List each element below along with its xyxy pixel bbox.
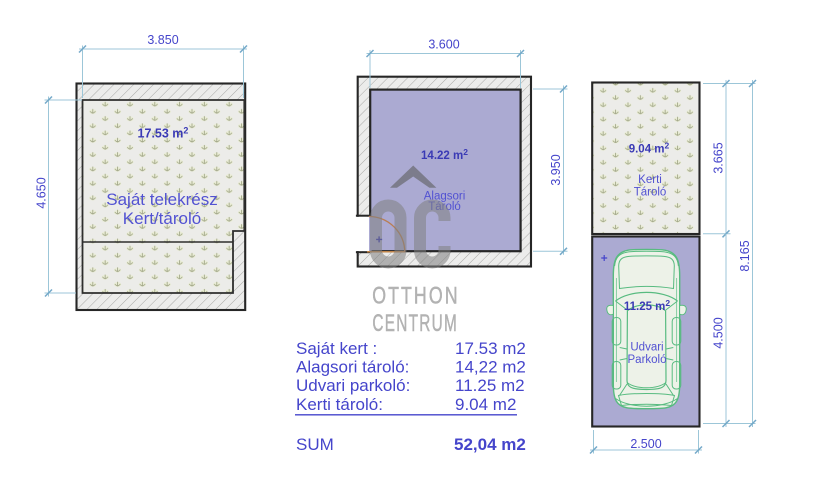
svg-text:Kerti: Kerti bbox=[638, 174, 662, 186]
svg-text:Saját telekrész: Saját telekrész bbox=[106, 190, 218, 209]
svg-text:Saját kert :: Saját kert : bbox=[296, 339, 377, 358]
svg-text:Tároló: Tároló bbox=[634, 187, 667, 199]
svg-text:52,04 m2: 52,04 m2 bbox=[454, 435, 526, 454]
svg-text:3.600: 3.600 bbox=[428, 38, 459, 52]
svg-text:17.53 m2: 17.53 m2 bbox=[455, 339, 526, 358]
svg-text:Parkoló: Parkoló bbox=[628, 354, 667, 366]
svg-text:3.850: 3.850 bbox=[147, 33, 178, 47]
svg-text:Kerti tároló:: Kerti tároló: bbox=[296, 395, 383, 414]
svg-text:SUM: SUM bbox=[296, 435, 334, 454]
svg-text:8.165: 8.165 bbox=[738, 240, 752, 271]
svg-text:4.500: 4.500 bbox=[712, 317, 726, 348]
svg-text:2.500: 2.500 bbox=[630, 437, 661, 451]
svg-text:11.25 m2: 11.25 m2 bbox=[624, 298, 671, 313]
svg-text:9.04 m2: 9.04 m2 bbox=[455, 395, 516, 414]
svg-text:Udvari parkoló:: Udvari parkoló: bbox=[296, 376, 410, 395]
svg-text:OTTHON: OTTHON bbox=[372, 283, 459, 309]
svg-text:3.950: 3.950 bbox=[549, 154, 563, 185]
svg-text:14,22 m2: 14,22 m2 bbox=[455, 358, 526, 377]
svg-text:14.22 m2: 14.22 m2 bbox=[421, 147, 468, 162]
svg-text:3.665: 3.665 bbox=[712, 142, 726, 173]
svg-text:CENTRUM: CENTRUM bbox=[372, 311, 458, 337]
svg-text:11.25 m2: 11.25 m2 bbox=[455, 376, 525, 395]
svg-text:9.04 m2: 9.04 m2 bbox=[629, 141, 670, 156]
svg-text:4.650: 4.650 bbox=[35, 177, 49, 208]
svg-text:Kert/tároló: Kert/tároló bbox=[123, 209, 201, 228]
svg-text:Udvari: Udvari bbox=[630, 342, 663, 354]
svg-text:17.53 m2: 17.53 m2 bbox=[138, 126, 189, 141]
svg-text:Alagsori tároló:: Alagsori tároló: bbox=[296, 358, 409, 377]
